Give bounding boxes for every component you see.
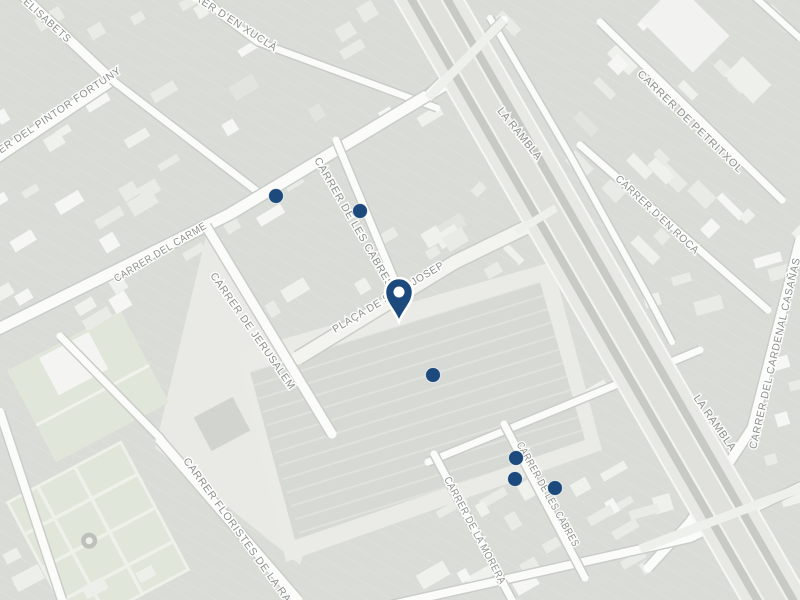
map-marker-dot[interactable] [269, 189, 284, 204]
map-canvas[interactable]: ELISABETSCARRER DEL PINTOR FORTUNYCARRER… [0, 0, 800, 600]
map-marker-dot[interactable] [508, 472, 523, 487]
map-marker-dot[interactable] [353, 204, 368, 219]
map-marker-dot[interactable] [426, 368, 441, 383]
pin-hole [394, 287, 405, 298]
map-marker-dot[interactable] [509, 451, 524, 466]
map[interactable]: ELISABETSCARRER DEL PINTOR FORTUNYCARRER… [0, 0, 800, 600]
map-marker-dot[interactable] [548, 481, 563, 496]
